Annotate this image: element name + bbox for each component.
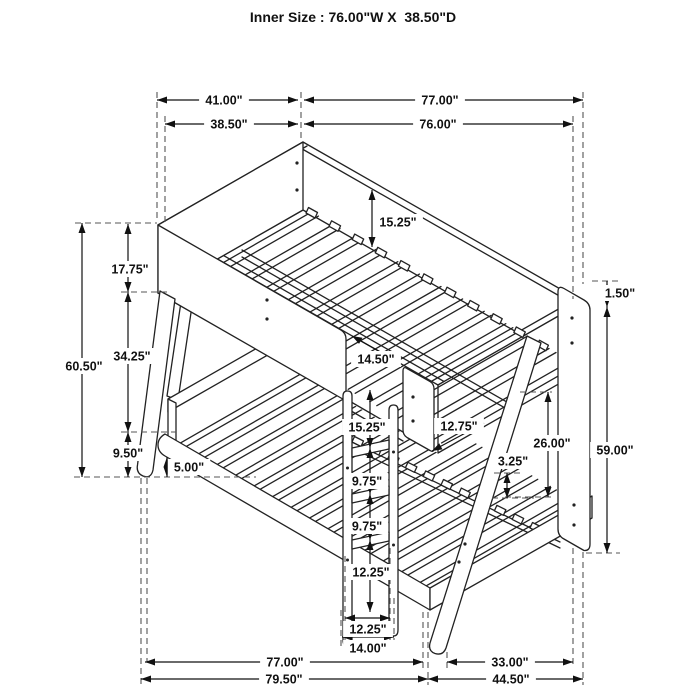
svg-text:1.50": 1.50" bbox=[605, 287, 635, 301]
dim-label-lower-slat-height: 3.25" bbox=[492, 453, 535, 469]
svg-text:79.50": 79.50" bbox=[265, 673, 302, 687]
svg-text:5.00": 5.00" bbox=[174, 461, 204, 475]
dim-label-overall-height: 60.50" bbox=[59, 358, 109, 374]
dim-label-ladder-opening-width: 14.50" bbox=[351, 351, 401, 367]
dim-label-lower-bunk-clearance: 26.00" bbox=[527, 435, 577, 451]
dim-label-guard-panel-gap: 12.75" bbox=[434, 418, 484, 434]
dim-label-ladder-inner-width: 12.25" bbox=[343, 621, 393, 637]
svg-text:15.25": 15.25" bbox=[379, 216, 416, 230]
dim-label-ladder-step-spacing-2: 9.75" bbox=[346, 518, 389, 534]
dim-label-upper-length-inner: 76.00" bbox=[413, 116, 463, 132]
dim-label-lower-rail-floor-height: 9.50" bbox=[107, 445, 150, 461]
svg-text:9.50": 9.50" bbox=[113, 447, 143, 461]
dim-label-upper-depth-outer: 41.00" bbox=[199, 92, 249, 108]
svg-text:33.00": 33.00" bbox=[491, 656, 528, 670]
svg-text:41.00": 41.00" bbox=[205, 94, 242, 108]
svg-text:26.00": 26.00" bbox=[533, 437, 570, 451]
svg-text:77.00": 77.00" bbox=[421, 94, 458, 108]
svg-text:3.25": 3.25" bbox=[498, 455, 528, 469]
svg-text:15.25": 15.25" bbox=[348, 421, 385, 435]
dim-label-upper-rail-to-slats: 15.25" bbox=[373, 214, 423, 230]
dim-label-bunk-gap-height: 34.25" bbox=[107, 348, 157, 364]
dim-label-side-frame-height: 59.00" bbox=[590, 442, 640, 458]
svg-text:44.50": 44.50" bbox=[492, 673, 529, 687]
dim-label-upper-rail-height: 17.75" bbox=[105, 261, 155, 277]
svg-text:77.00": 77.00" bbox=[266, 656, 303, 670]
svg-text:17.75": 17.75" bbox=[111, 263, 148, 277]
dim-label-upper-depth-inner: 38.50" bbox=[204, 116, 254, 132]
svg-text:12.25": 12.25" bbox=[352, 566, 389, 580]
dim-label-ladder-outer-width: 14.00" bbox=[343, 640, 393, 656]
page-title: Inner Size : 76.00"W X 38.50"D bbox=[250, 9, 456, 25]
svg-text:9.75": 9.75" bbox=[352, 475, 382, 489]
svg-text:14.00": 14.00" bbox=[349, 642, 386, 656]
dim-label-upper-length-outer: 77.00" bbox=[415, 92, 465, 108]
dim-label-ladder-step-spacing-1: 9.75" bbox=[346, 473, 389, 489]
dim-label-lower-depth-outer: 44.50" bbox=[486, 671, 536, 687]
svg-text:9.75": 9.75" bbox=[352, 520, 382, 534]
svg-text:76.00": 76.00" bbox=[419, 118, 456, 132]
svg-text:38.50": 38.50" bbox=[210, 118, 247, 132]
dim-label-lower-length-inner: 77.00" bbox=[260, 654, 310, 670]
dim-label-side-frame-depth: 33.00" bbox=[485, 654, 535, 670]
svg-text:14.50": 14.50" bbox=[357, 353, 394, 367]
svg-text:12.25": 12.25" bbox=[349, 623, 386, 637]
diagram-canvas: Inner Size : 76.00"W X 38.50"D 41.00"77.… bbox=[0, 0, 700, 700]
svg-text:60.50": 60.50" bbox=[65, 360, 102, 374]
dim-label-lower-length-outer: 79.50" bbox=[259, 671, 309, 687]
dim-label-rail-top-offset: 1.50" bbox=[599, 285, 642, 301]
right-end-panel bbox=[558, 287, 590, 550]
svg-text:12.75": 12.75" bbox=[440, 420, 477, 434]
svg-text:34.25": 34.25" bbox=[113, 350, 150, 364]
dim-label-ladder-bottom-step: 12.25" bbox=[346, 564, 396, 580]
bunk-bed-dimension-diagram: Inner Size : 76.00"W X 38.50"D 41.00"77.… bbox=[0, 0, 700, 700]
dim-label-lower-rail-bottom-clearance: 5.00" bbox=[168, 459, 211, 475]
svg-text:59.00": 59.00" bbox=[596, 444, 633, 458]
dim-label-ladder-top-step: 15.25" bbox=[342, 419, 392, 435]
